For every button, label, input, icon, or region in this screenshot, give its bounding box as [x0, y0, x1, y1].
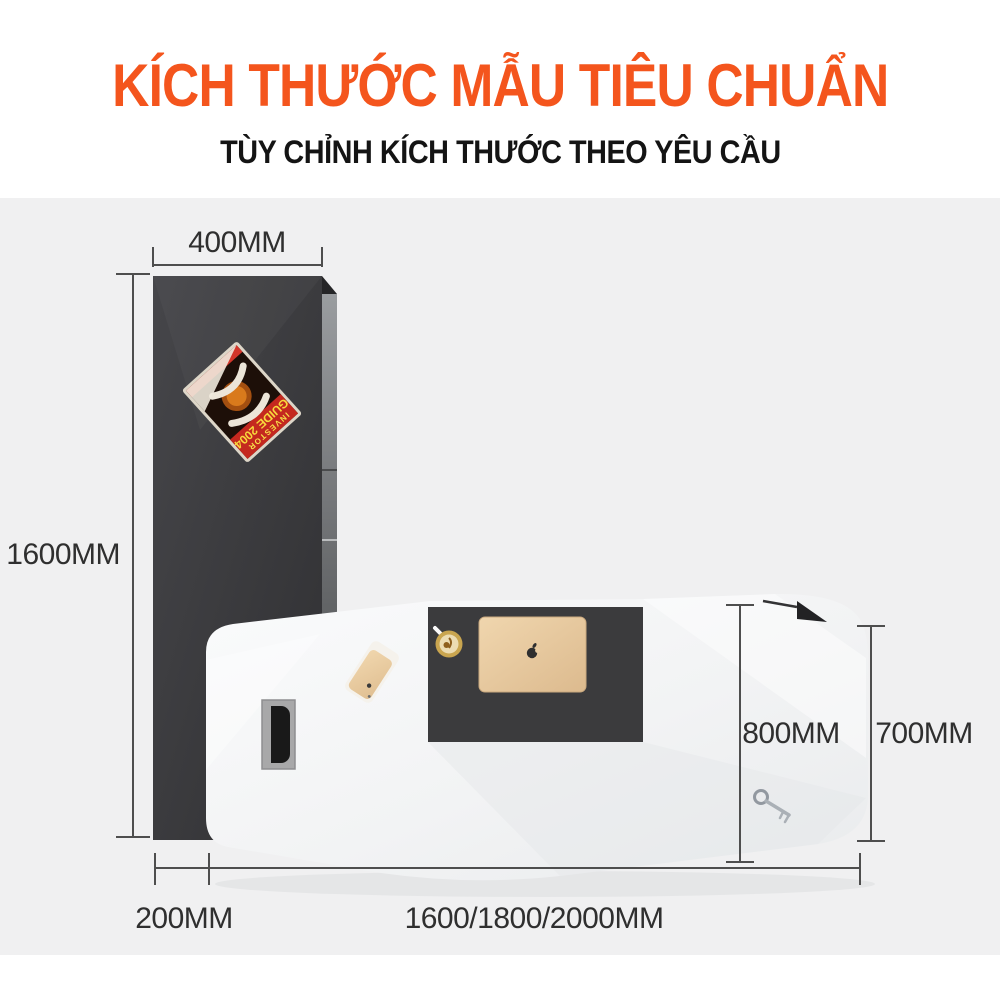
dim-label-desk-depth: 800MM — [742, 717, 840, 750]
dim-label-bottom-span: 1600/1800/2000MM — [405, 902, 664, 935]
dim-label-top-width: 400MM — [188, 226, 286, 259]
dim-label-bottom-offset: 200MM — [135, 902, 233, 935]
cable-grommet-opening — [271, 706, 290, 763]
dim-label-left-height: 1600MM — [6, 538, 120, 571]
cabinet-side-panel — [322, 294, 337, 624]
laptop — [479, 617, 586, 692]
cable-grommet — [262, 700, 295, 769]
dim-label-right-height: 700MM — [875, 717, 973, 750]
product-dimension-infographic: KÍCH THƯỚC MẪU TIÊU CHUẨN TÙY CHỈNH KÍCH… — [0, 0, 1000, 1000]
dimension-diagram: INVESTOR GUIDE 2004 — [0, 0, 1000, 1000]
